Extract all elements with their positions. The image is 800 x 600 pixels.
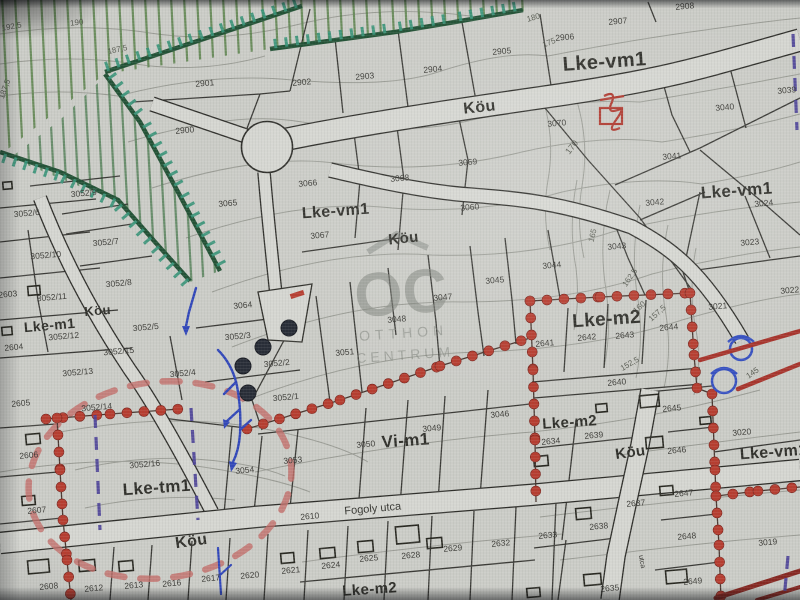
parcel-number: 2643	[615, 329, 635, 341]
zoning-code: Köu	[388, 228, 420, 248]
parcel-number: 2648	[677, 530, 697, 542]
parcel-number: 2620	[240, 569, 260, 581]
parcel-number: 2634	[541, 435, 561, 447]
zoning-code: Köu	[463, 97, 497, 117]
parcel-number: 2641	[535, 337, 555, 349]
parcel-number: 3064	[233, 299, 253, 311]
parcel-number: 3023	[740, 236, 760, 248]
parcel-number: 2633	[538, 529, 558, 541]
parcel-number: 3050	[356, 438, 376, 450]
parcel-number: 2642	[577, 331, 597, 343]
contour-elevation-label: 190	[70, 17, 85, 27]
parcel-number: 3066	[298, 177, 318, 189]
parcel-number: 3020	[732, 426, 752, 438]
parcel-number: 2900	[175, 124, 195, 136]
parcel-number: 2649	[683, 575, 703, 587]
parcel-number: 2640	[607, 376, 627, 388]
parcel-number: 3070	[547, 117, 567, 129]
parcel-number: 2606	[19, 449, 39, 461]
parcel-number: 2613	[124, 579, 144, 591]
parcel-number: 3067	[310, 229, 330, 241]
parcel-number: 3044	[542, 259, 562, 271]
parcel-number: 3053	[283, 454, 303, 466]
parcel-number: 3022	[780, 284, 800, 296]
zoning-code: Köu	[84, 302, 112, 319]
parcel-number: 3054	[235, 464, 255, 476]
parcel-number: 2625	[359, 552, 379, 564]
parcel-number: 2621	[281, 564, 301, 576]
parcel-number: 2907	[608, 15, 628, 27]
parcel-number: 2612	[84, 582, 104, 594]
parcel-number: 2605	[11, 397, 31, 409]
parcel-number: 3043	[607, 240, 627, 252]
parcel-number: 3048	[387, 313, 407, 325]
parcel-number: 3068	[390, 172, 410, 184]
parcel-number: 2639	[584, 429, 604, 441]
map-photo: OC OTTHON CENTRUM 192,5190187,5187,51801…	[0, 0, 800, 600]
parcel-number: 2646	[667, 444, 687, 456]
parcel-number: 2616	[162, 577, 182, 589]
parcel-number: 2638	[589, 520, 609, 532]
parcel-number: 2645	[662, 402, 682, 414]
roundabout	[242, 122, 293, 173]
parcel-number: 3021	[708, 300, 728, 312]
parcel-number: 2624	[321, 559, 341, 571]
zoning-code: Vi-m1	[381, 429, 430, 451]
parcel-number: 2902	[292, 76, 312, 88]
parcel-number: 2904	[423, 63, 443, 75]
parcel-number: 2610	[300, 510, 320, 522]
parcel-number: 3051	[335, 346, 355, 358]
parcel-number: 2607	[27, 504, 47, 516]
parcel-number: 2908	[675, 0, 695, 12]
parcel-number: 2635	[600, 582, 620, 594]
parcel-number: 2906	[555, 31, 575, 43]
parcel-number: 3040	[715, 101, 735, 113]
parcel-number: 3046	[490, 408, 510, 420]
parcel-number: 2629	[443, 542, 463, 554]
parcel-number: 2647	[674, 487, 694, 499]
parcel-number: 2632	[491, 537, 511, 549]
parcel-number: 2637	[626, 497, 646, 509]
parcel-number: 3024	[754, 197, 774, 209]
parcel-number: 2901	[195, 77, 215, 89]
parcel-number: 2617	[201, 572, 221, 584]
parcel-number: 3045	[485, 274, 505, 286]
parcel-number: 3042	[645, 196, 665, 208]
parcel-number: 3039	[777, 84, 797, 96]
parcel-number: 2628	[401, 549, 421, 561]
parcel-number: 2644	[659, 321, 679, 333]
parcel-number: 2608	[39, 580, 59, 592]
parcel-number: 2603	[0, 288, 18, 300]
parcel-number: 3069	[458, 156, 478, 168]
parcel-number: 2604	[4, 341, 24, 353]
zoning-map-canvas[interactable]: OC OTTHON CENTRUM 192,5190187,5187,51801…	[0, 0, 800, 600]
parcel-number: 2903	[355, 70, 375, 82]
parcel-number: 3060	[460, 201, 480, 213]
parcel-number: 3065	[218, 197, 238, 209]
parcel-number: 2905	[492, 45, 512, 57]
parcel-number: 3041	[662, 150, 682, 162]
parcel-number: 3047	[433, 291, 453, 303]
parcel-number: 3019	[758, 536, 778, 548]
